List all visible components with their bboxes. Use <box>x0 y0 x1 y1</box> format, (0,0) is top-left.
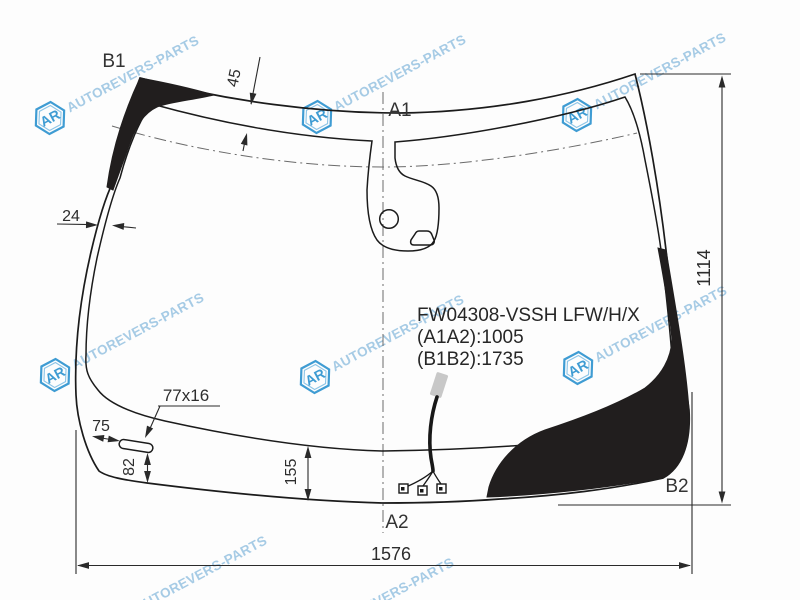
label-a2: A2 <box>385 512 408 533</box>
label-b2: B2 <box>665 476 688 497</box>
label-a1: A1 <box>388 100 411 121</box>
label-b1: B1 <box>102 51 125 72</box>
mirror-pad <box>119 439 154 453</box>
dim-top-band-text: 45 <box>224 67 244 88</box>
dim-bottom-band-text: 155 <box>283 459 300 486</box>
wire-connector <box>430 372 449 399</box>
sensor-hole <box>380 210 399 229</box>
dim-sticker-from-edge: 75 <box>91 418 120 444</box>
windshield-diagram: AR AUTOREVERS-PARTS <box>0 0 800 600</box>
dim-width-text: 1576 <box>371 544 411 564</box>
ceramic-band-top-left <box>107 78 214 190</box>
wire-branch-left <box>406 471 433 487</box>
dim-sticker-from-bottom-text: 82 <box>121 458 138 476</box>
wire-terminals <box>399 484 446 495</box>
part-dim-b1b2: (B1B2):1735 <box>417 349 524 370</box>
dim-top-band: 45 <box>224 57 260 151</box>
diagram-canvas: AR AUTOREVERS-PARTS <box>0 0 800 600</box>
dim-sticker-from-edge-text: 75 <box>92 418 110 435</box>
part-dim-a1a2: (A1A2):1005 <box>417 327 524 348</box>
dim-sticker: 77x16 <box>142 386 220 439</box>
dim-sticker-text: 77x16 <box>163 386 209 405</box>
part-number: FW04308-VSSH LFW/H/X <box>417 305 640 326</box>
sensor-window <box>411 231 435 245</box>
dim-height-text: 1114 <box>694 249 714 286</box>
dim-sticker-from-bottom: 82 <box>121 453 151 483</box>
wire-branch-mid <box>423 471 433 486</box>
wire-harness <box>430 397 437 471</box>
dim-left-band-text: 24 <box>62 208 80 225</box>
horizontal-centerline <box>112 126 637 167</box>
wire-branch-right <box>433 471 441 484</box>
dim-left-band: 24 <box>57 208 136 230</box>
dim-bottom-band: 155 <box>283 446 311 501</box>
